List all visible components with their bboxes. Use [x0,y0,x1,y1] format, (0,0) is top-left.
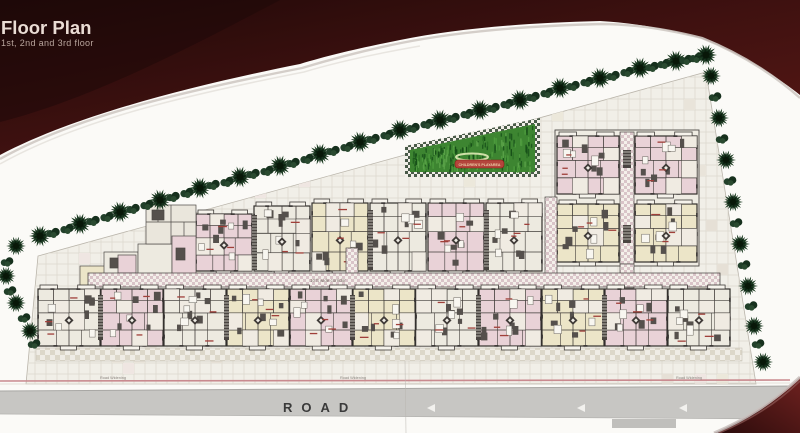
svg-text:10 ft wide corridor: 10 ft wide corridor [310,278,346,283]
svg-text:CHILDREN'S PLAYAREA: CHILDREN'S PLAYAREA [459,163,501,167]
svg-text:1st, 2nd and 3rd floor: 1st, 2nd and 3rd floor [1,38,94,48]
svg-text:ROAD: ROAD [283,400,357,415]
svg-text:Road Widening: Road Widening [100,376,126,380]
svg-text:Road Widening: Road Widening [676,376,702,380]
svg-text:Road Widening: Road Widening [340,376,366,380]
svg-text:Floor Plan: Floor Plan [1,17,91,38]
